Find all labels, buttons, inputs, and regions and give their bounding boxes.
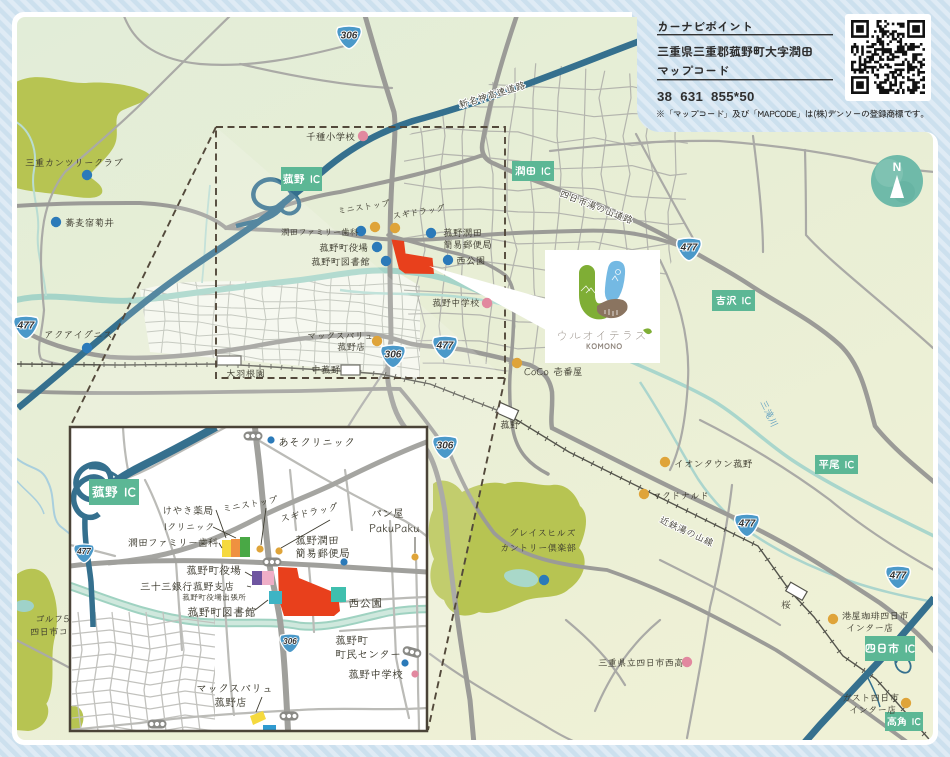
svg-text:477: 477 [76, 547, 91, 556]
svg-text:306: 306 [437, 441, 454, 452]
svg-text:477: 477 [738, 519, 756, 530]
svg-text:306: 306 [283, 637, 297, 646]
svg-text:477: 477 [680, 243, 698, 254]
svg-text:477: 477 [436, 341, 454, 352]
svg-text:306: 306 [385, 350, 402, 361]
svg-text:N: N [893, 160, 902, 174]
svg-text:306: 306 [341, 31, 358, 42]
svg-text:477: 477 [17, 321, 35, 332]
svg-text:38 631 855*50: 38 631 855*50 [657, 89, 755, 104]
svg-text:477: 477 [889, 571, 907, 582]
